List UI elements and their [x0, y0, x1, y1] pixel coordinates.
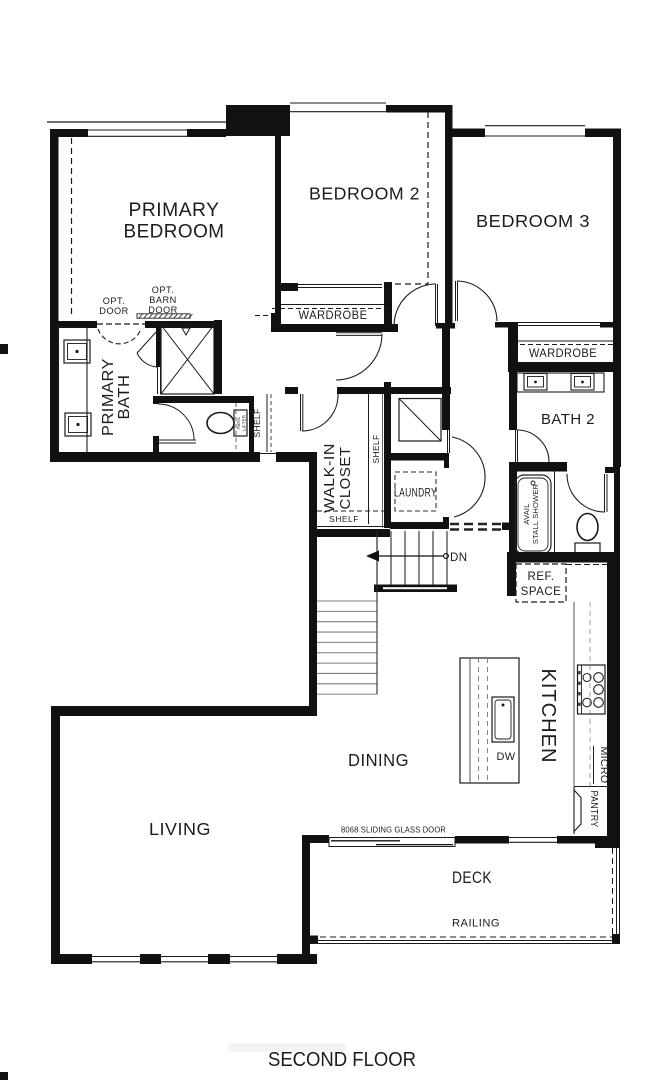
svg-text:DOOR: DOOR [148, 305, 178, 315]
svg-text:LAUNDRY: LAUNDRY [394, 488, 437, 500]
svg-text:BEDROOM: BEDROOM [124, 221, 225, 243]
svg-text:REF.: REF. [528, 571, 555, 583]
svg-text:PRIMARY: PRIMARY [129, 199, 220, 221]
svg-text:SHELF: SHELF [252, 409, 262, 438]
svg-text:OPT.: OPT. [103, 296, 125, 306]
svg-text:PANTRY: PANTRY [588, 791, 599, 828]
svg-text:8068 SLIDING GLASS DOOR: 8068 SLIDING GLASS DOOR [341, 826, 446, 835]
svg-text:STALL SHOWER: STALL SHOWER [531, 483, 540, 544]
svg-text:KITCHEN: KITCHEN [537, 669, 560, 764]
svg-text:DECK: DECK [452, 869, 492, 887]
svg-text:SPACE: SPACE [521, 586, 562, 598]
svg-text:BEDROOM 3: BEDROOM 3 [476, 211, 590, 231]
svg-text:OPT.: OPT. [152, 285, 174, 295]
svg-text:SHELF: SHELF [329, 514, 359, 524]
svg-text:DINING: DINING [348, 750, 409, 770]
svg-text:WARDROBE: WARDROBE [529, 348, 597, 360]
svg-text:DOOR: DOOR [99, 306, 129, 316]
svg-text:PRIMARY: PRIMARY [100, 358, 117, 436]
svg-text:LIVING: LIVING [149, 819, 211, 839]
svg-text:DN: DN [450, 552, 467, 564]
svg-text:WARDROBE: WARDROBE [299, 310, 368, 322]
svg-text:LIFTER: LIFTER [242, 414, 247, 431]
svg-text:RAILING: RAILING [452, 918, 500, 930]
svg-text:DW: DW [497, 751, 516, 763]
svg-text:CLOSET: CLOSET [338, 447, 354, 510]
svg-text:SHELF: SHELF [371, 435, 381, 464]
svg-text:BATH 2: BATH 2 [541, 411, 595, 428]
svg-text:MICRO: MICRO [598, 747, 609, 784]
svg-text:SECOND FLOOR: SECOND FLOOR [268, 1048, 416, 1071]
svg-text:BARN: BARN [149, 295, 177, 305]
svg-text:AVAIL: AVAIL [522, 503, 531, 524]
svg-text:AVAIL: AVAIL [236, 416, 241, 429]
svg-text:BEDROOM 2: BEDROOM 2 [309, 184, 420, 204]
svg-text:BATH: BATH [116, 375, 133, 420]
svg-text:WALK-IN: WALK-IN [322, 443, 338, 513]
